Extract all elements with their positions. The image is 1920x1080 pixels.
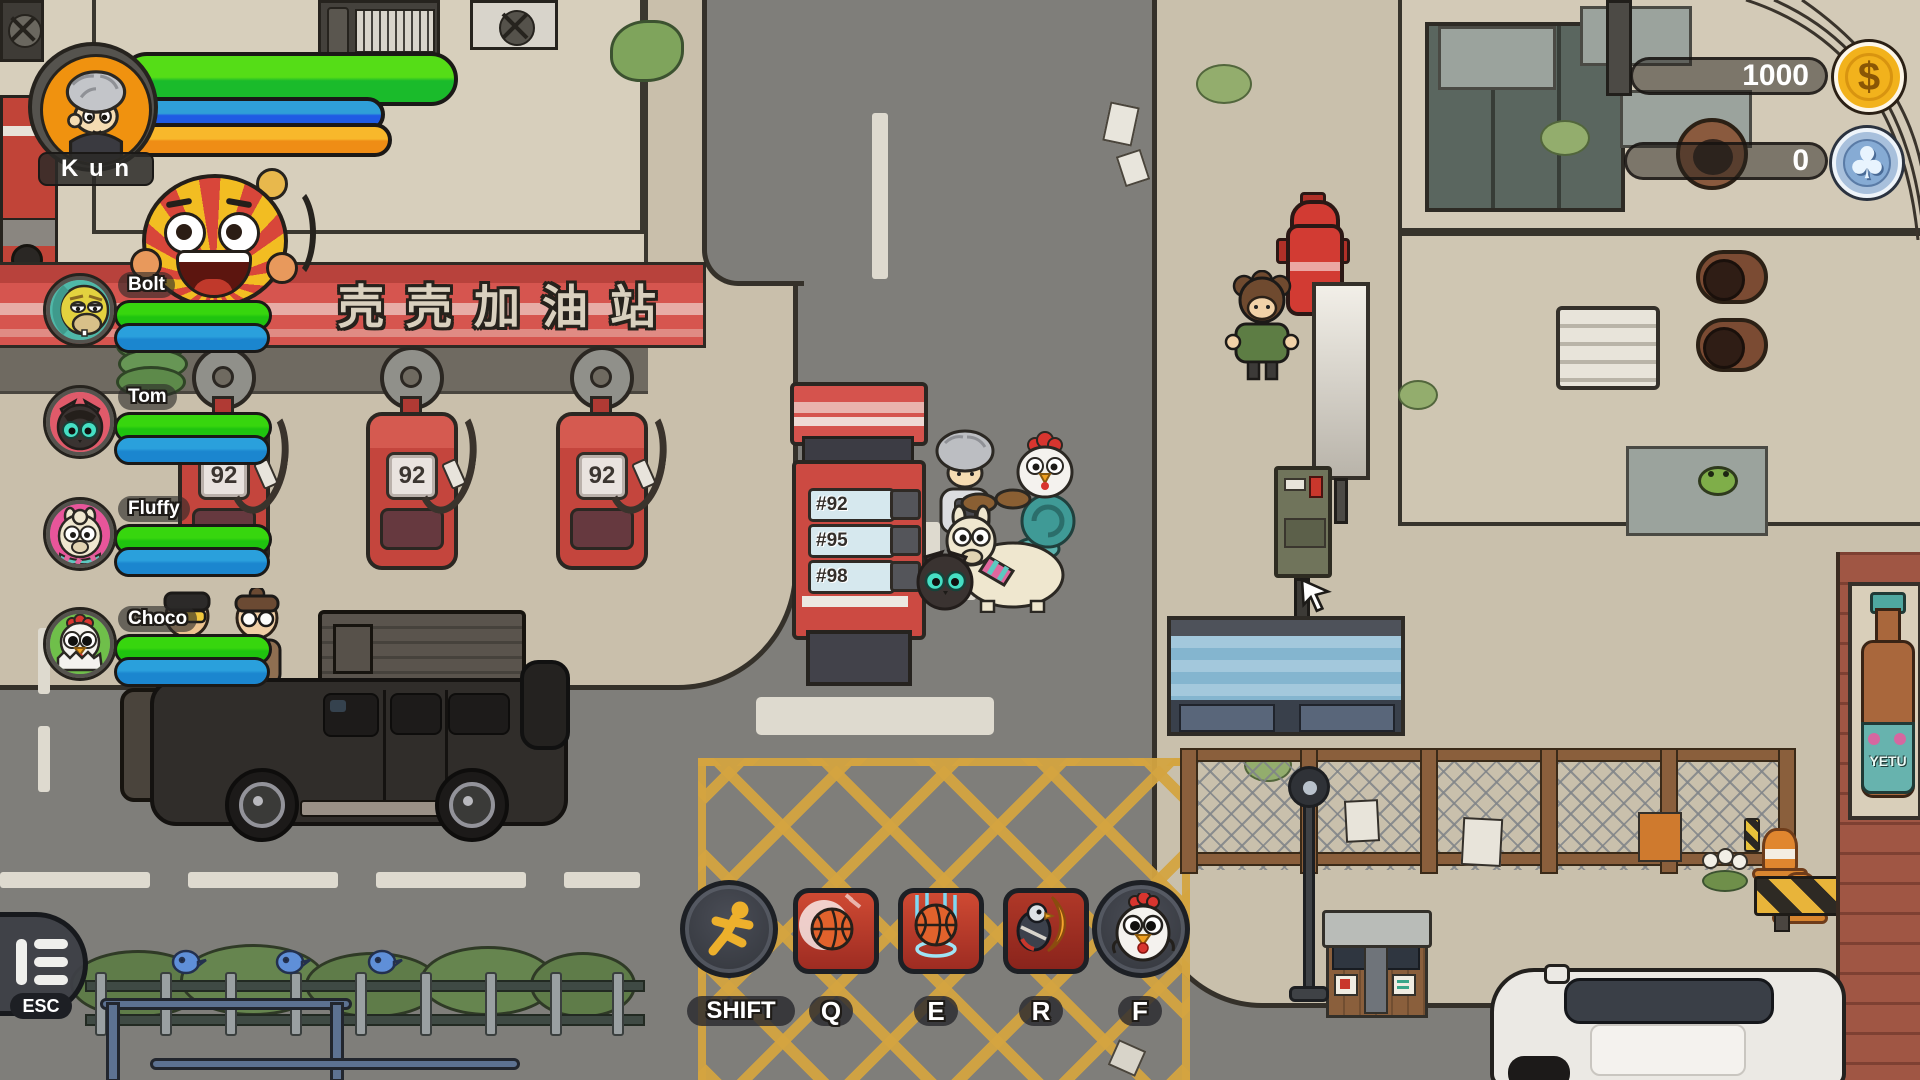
vent-fan: [0, 0, 44, 62]
fuel-pump: 92: [176, 346, 264, 566]
left-road-dash: [38, 726, 50, 792]
black-suv: [115, 600, 585, 830]
round-planter: [1676, 118, 1748, 190]
gas-station-sign-text: 壳壳加油站: [322, 268, 694, 340]
paper-scrap: [1116, 149, 1151, 187]
npc-green: [1222, 270, 1302, 385]
bottle-poster-text: YETU: [1864, 753, 1912, 769]
price-row: #98: [808, 560, 895, 594]
left-road-dash: [38, 628, 50, 694]
playground-bar: [100, 998, 352, 1010]
fuel-pump: 92: [364, 346, 452, 566]
concrete-pad: [1438, 26, 1556, 90]
lamppost-head: [1288, 766, 1330, 808]
road-center-dash: [872, 113, 888, 279]
white-flowers: [1700, 848, 1746, 890]
striped-bollard: [1744, 818, 1760, 852]
drainpipe: [1606, 0, 1632, 96]
fuel-pump: 92: [554, 346, 642, 566]
game-viewport: 壳壳加油站 92 92 92: [0, 0, 1920, 1080]
fuel-price-sign: #92 #95 #98: [790, 382, 920, 682]
moss-patch: [1398, 380, 1438, 410]
moss-patch: [1196, 64, 1252, 104]
concrete-pad: [1626, 446, 1768, 536]
lane-line: [376, 872, 526, 888]
bottle-poster: YETU: [1848, 582, 1920, 820]
stop-line: [756, 697, 994, 735]
white-car: [1490, 968, 1846, 1080]
shell-mascot: [138, 166, 288, 302]
concrete-pad: [1580, 6, 1692, 66]
rooftop-unit: [318, 0, 440, 56]
price-row: #92: [808, 488, 895, 522]
overhead-wires: [1740, 0, 1920, 240]
lane-line: [564, 872, 640, 888]
playground-pole: [106, 1002, 120, 1080]
bush: [610, 20, 684, 82]
player-character-group: [915, 415, 1095, 613]
price-row: #95: [808, 524, 895, 558]
road-notch: [702, 0, 804, 286]
playground-bar: [150, 1058, 520, 1070]
lamppost-pole: [1303, 800, 1315, 990]
frog: [1698, 466, 1738, 496]
blue-siding-shop: [1167, 616, 1405, 736]
wall-pipe: [1696, 318, 1768, 372]
blank-signboard: [1312, 282, 1370, 480]
lane-line: [0, 872, 150, 888]
canopy-shadow: [0, 348, 648, 394]
parked-truck: [0, 95, 58, 267]
lane-line: [188, 872, 338, 888]
wall-vent: [1556, 306, 1660, 390]
utility-box: [1274, 466, 1332, 578]
wall-pipe: [1696, 250, 1768, 304]
lamppost-base: [1289, 986, 1329, 1002]
menu-button-label: ESC: [10, 993, 72, 1019]
blue-birds: [170, 940, 430, 980]
kiosk: [1326, 910, 1422, 1012]
exhaust-fan: [470, 0, 558, 50]
mouse-cursor: [1300, 578, 1332, 614]
paper-scrap: [1102, 101, 1140, 146]
yellow-crosshatch-zone: [698, 758, 1190, 1080]
sign-pole: [1334, 478, 1348, 524]
moss-patch: [1540, 120, 1590, 156]
